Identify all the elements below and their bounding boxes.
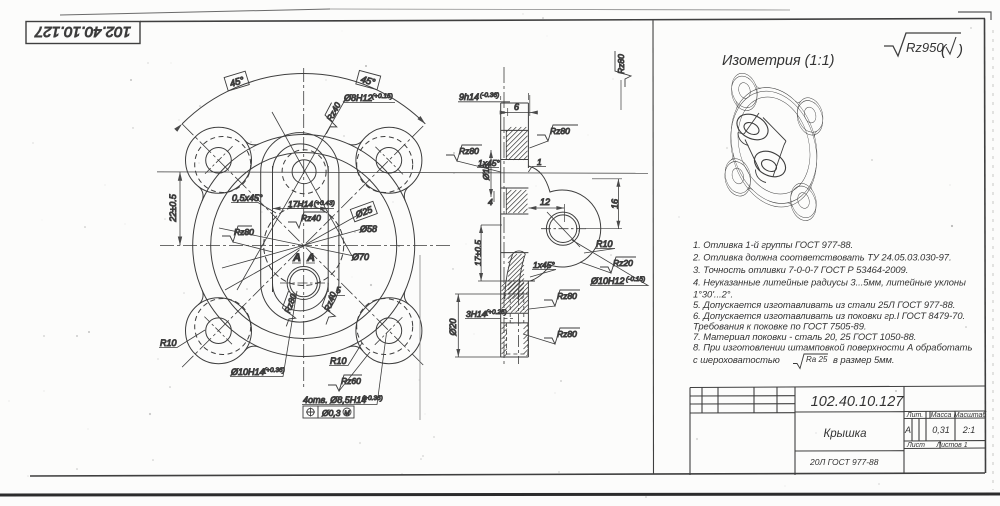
svg-text:0,31: 0,31 [932,425,950,435]
svg-text:в размер 5мм.: в размер 5мм. [833,354,894,365]
svg-text:Rz40: Rz40 [301,213,321,223]
svg-text:Rz80: Rz80 [550,126,570,136]
svg-text:0,5x45°: 0,5x45° [232,193,263,203]
svg-text:4отв. Ø8,5H14: 4отв. Ø8,5H14 [303,395,366,405]
svg-text:1°30'...2°.: 1°30'...2°. [693,289,733,300]
svg-text:R10: R10 [160,338,177,348]
svg-text:17H14: 17H14 [288,199,313,209]
svg-text:Изометрия (1:1): Изометрия (1:1) [722,53,835,69]
svg-text:(+0.15): (+0.15) [372,93,393,100]
svg-text:9h14: 9h14 [459,92,479,102]
svg-text:4. Неуказанные литейные радиус: 4. Неуказанные литейные радиусы 3...5мм,… [693,277,966,288]
svg-text:5. Допускается изготавливать и: 5. Допускается изготавливать из стали 25… [693,299,955,310]
svg-text:Масса: Масса [931,412,952,419]
svg-text:А: А [306,252,315,264]
svg-text:Крышка: Крышка [823,428,866,440]
svg-text:Rz80: Rz80 [234,227,254,237]
svg-text:2. Отливка должна соответствов: 2. Отливка должна соответствовать ТУ 24.… [692,252,952,263]
svg-text:7. Материал поковки - сталь 20: 7. Материал поковки - сталь 20, 25 ГОСТ … [693,331,916,342]
svg-text:Лист: Лист [906,442,925,449]
svg-text:22±0.5: 22±0.5 [168,193,178,222]
svg-text:Ø8H12: Ø8H12 [343,93,373,103]
svg-text:(+0.36): (+0.36) [362,395,383,402]
svg-text:Ø58: Ø58 [359,224,377,234]
svg-text:1: 1 [537,157,542,167]
svg-text:102.40.10.127: 102.40.10.127 [34,23,131,40]
svg-text:6: 6 [514,102,519,112]
svg-text:20Л ГОСТ 977-88: 20Л ГОСТ 977-88 [809,457,879,467]
svg-text:M: M [344,410,350,417]
svg-text:(+0.25): (+0.25) [486,309,507,316]
svg-text:Rz80: Rz80 [616,54,626,74]
svg-text:Листов 1: Листов 1 [935,442,967,449]
svg-text:Rz80: Rz80 [459,146,479,156]
svg-text:17±0.5: 17±0.5 [473,240,483,266]
svg-text:R10: R10 [596,239,613,249]
svg-text:Ø70: Ø70 [351,252,369,262]
svg-text:6. Допускается изготавливать и: 6. Допускается изготавливать из поковки … [693,310,965,321]
svg-text:2:1: 2:1 [962,425,976,435]
svg-text:Требования к поковке по ГОСТ 7: Требования к поковке по ГОСТ 7505-89. [693,321,866,332]
svg-text:4: 4 [488,197,493,207]
svg-text:12: 12 [540,197,550,207]
svg-text:Ø0,3: Ø0,3 [321,408,341,418]
svg-text:(-0.36): (-0.36) [480,92,499,99]
svg-text:Лит.: Лит. [906,412,923,419]
svg-text:Ø10H14: Ø10H14 [230,367,265,377]
svg-text:3. Точность отливки 7-0-0-7 ГО: 3. Точность отливки 7-0-0-7 ГОСТ Р 53464… [693,264,908,275]
svg-text:(+0.43): (+0.43) [314,200,335,207]
svg-text:(+0.36): (+0.36) [264,367,285,374]
svg-text:Ra 25: Ra 25 [806,355,828,364]
svg-text:Rz80: Rz80 [557,291,577,301]
svg-text:1x45°: 1x45° [533,260,555,270]
svg-text:1. Отливка 1-й группы ГОСТ 977: 1. Отливка 1-й группы ГОСТ 977-88. [693,239,853,250]
svg-text:16: 16 [610,199,620,209]
svg-text:А: А [904,425,911,435]
svg-text:3H14: 3H14 [466,309,487,319]
svg-text:R10: R10 [330,356,347,366]
svg-text:): ) [956,42,963,59]
svg-text:Ø20: Ø20 [448,318,458,336]
svg-text:с шероховатостью: с шероховатостью [693,354,780,365]
svg-text:8. При изготовлении штамповкой: 8. При изготовлении штамповкой поверхнос… [693,342,972,353]
svg-text:102.40.10.127: 102.40.10.127 [811,394,905,410]
svg-text:А: А [292,252,301,264]
svg-text:Ø10H12: Ø10H12 [590,276,625,286]
svg-text:Rz80: Rz80 [557,329,577,339]
svg-text:Ø15: Ø15 [481,164,491,181]
svg-text:Rz950: Rz950 [906,40,944,55]
svg-text:Масштаб: Масштаб [954,411,988,419]
